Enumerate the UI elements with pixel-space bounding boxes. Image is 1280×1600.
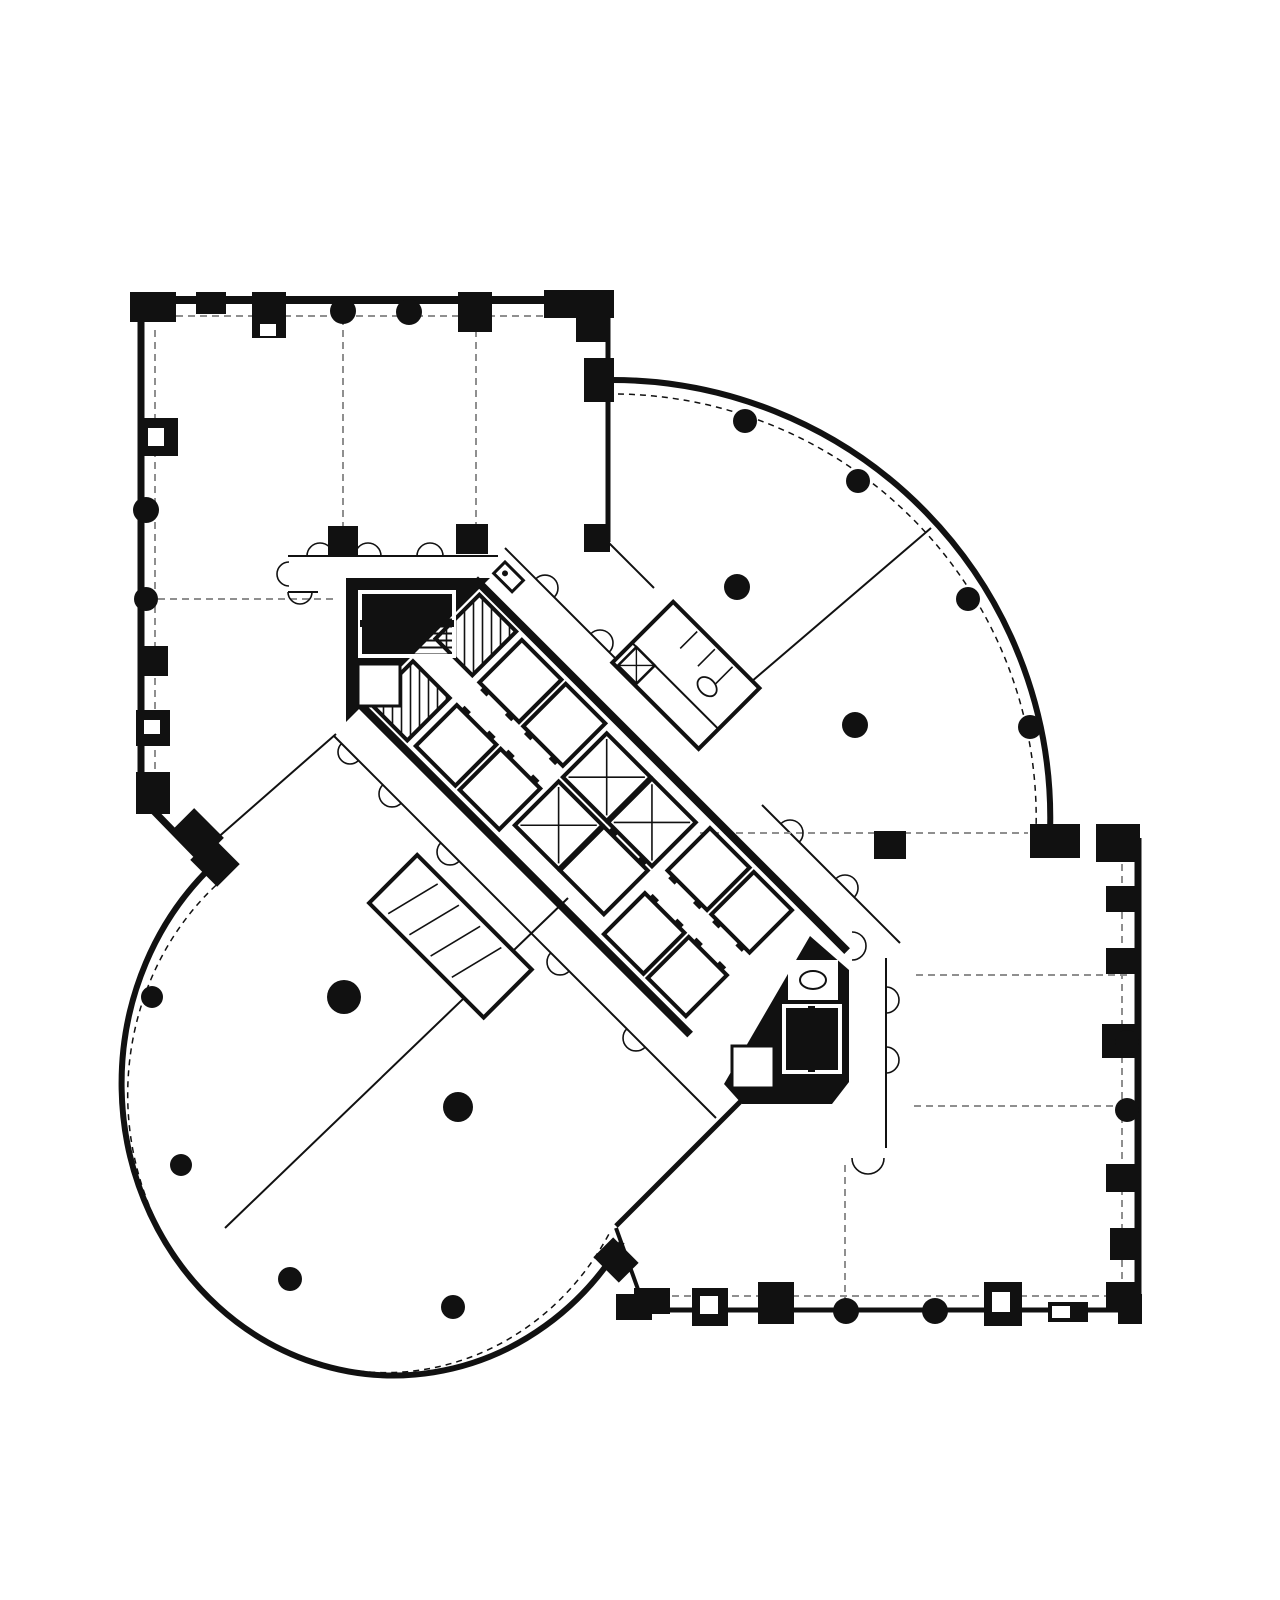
wall-pier <box>544 290 614 318</box>
door-swing-arc <box>417 543 443 556</box>
core-band <box>260 491 935 1166</box>
door-swing-arc <box>852 932 866 960</box>
door-swing-arc <box>536 575 558 597</box>
restroom-southwest <box>369 855 532 1018</box>
wall-pier <box>138 646 168 676</box>
pier-notch <box>144 720 160 734</box>
partition-wall <box>744 528 931 688</box>
floor-plan-drawing <box>0 0 1280 1600</box>
pier-notch <box>992 1292 1010 1312</box>
wing-top-right-curved <box>608 300 1050 833</box>
wall-pier <box>576 316 606 342</box>
door-swing-arc <box>355 543 381 556</box>
wall-pier <box>616 1294 652 1320</box>
door-swing-arc <box>852 1158 884 1174</box>
wall-pier <box>196 292 226 314</box>
column-dot <box>956 587 980 611</box>
door-swing-arc <box>886 1047 899 1073</box>
column-dot <box>922 1298 948 1324</box>
wall-pier <box>458 292 492 332</box>
pier-notch <box>1052 1306 1070 1318</box>
stair-closet <box>358 664 400 706</box>
column-dot <box>833 1298 859 1324</box>
wall-pier <box>456 524 488 554</box>
door-swing-arc <box>277 562 289 586</box>
core-entry-door <box>494 562 524 592</box>
circle-facade-inner-line <box>128 878 610 1373</box>
partition-wall <box>225 898 568 1228</box>
column-dot <box>133 497 159 523</box>
pier-notch <box>260 324 276 336</box>
wall-pier <box>1106 1164 1138 1192</box>
column-dot <box>1115 1030 1139 1054</box>
stair-divider <box>360 620 454 627</box>
wall-pier <box>584 524 610 552</box>
wall-pier <box>758 1282 794 1324</box>
door-swing-arc <box>623 1029 645 1051</box>
stair-room-bottom-right <box>724 936 849 1104</box>
wall-pier <box>584 358 614 402</box>
wall-pier <box>1106 948 1138 974</box>
wall-pier <box>874 831 906 859</box>
stair-closet <box>732 1046 774 1088</box>
wall-pier <box>1118 1294 1142 1324</box>
column-dot <box>846 469 870 493</box>
pier-notch <box>700 1296 718 1314</box>
column-dot <box>1115 1098 1139 1122</box>
column-dot <box>170 1154 192 1176</box>
column-dot <box>724 574 750 600</box>
wall-pier <box>136 772 170 814</box>
partition-wall <box>762 805 900 943</box>
door-swing-arc <box>547 953 569 975</box>
wall-pier <box>1030 824 1080 858</box>
floor-plan-page <box>0 0 1280 1600</box>
wall-pier <box>1106 886 1138 912</box>
door-swing-arc <box>781 820 803 842</box>
circle-facade <box>122 868 622 1375</box>
column-dot <box>842 712 868 738</box>
door-swing-arc <box>379 785 401 807</box>
wing-bottom-left-circle <box>122 868 622 1375</box>
column-dot <box>396 299 422 325</box>
column-dot <box>330 298 356 324</box>
door-swing-arc <box>437 843 459 865</box>
stair-divider <box>808 1006 815 1072</box>
partition-wall <box>616 1086 756 1226</box>
wall-pier <box>1110 1228 1140 1260</box>
column-dot <box>134 587 158 611</box>
restroom-northeast <box>612 602 759 749</box>
column-dot <box>327 980 361 1014</box>
door-swing-arc <box>886 987 899 1013</box>
wc-room <box>788 960 838 1000</box>
door-swing-arc <box>591 630 613 652</box>
door-swing-arc <box>836 875 858 897</box>
column-dot <box>733 409 757 433</box>
wall-pier <box>1096 824 1140 862</box>
pier-notch <box>148 428 164 446</box>
partition-wall <box>606 540 654 588</box>
column-dot <box>443 1092 473 1122</box>
wall-pier <box>130 292 176 322</box>
partition-wall <box>207 734 336 847</box>
door-swing-arc <box>338 744 358 764</box>
column-dot <box>441 1295 465 1319</box>
column-dot <box>141 986 163 1008</box>
column-dot <box>1018 715 1042 739</box>
column-dot <box>278 1267 302 1291</box>
wall-pier <box>328 526 358 556</box>
